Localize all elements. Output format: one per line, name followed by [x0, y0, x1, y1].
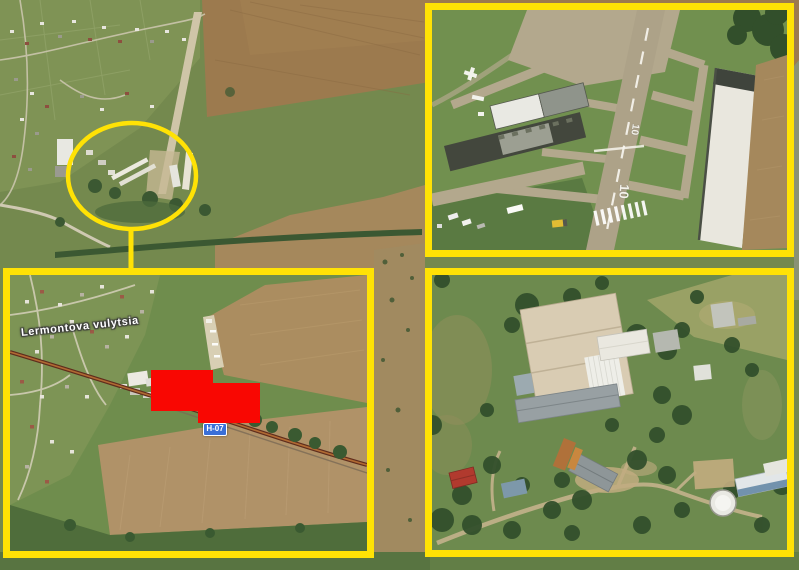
runway-number-far: 10 [628, 123, 640, 136]
inset-map [10, 275, 367, 551]
building-gray-small [653, 329, 681, 353]
runway-number-near: 10 [616, 184, 632, 199]
road-badge-h07: H-07 [203, 423, 227, 436]
facility-panel [425, 268, 794, 557]
airfield-panel: 10 10 [425, 3, 794, 257]
warehouse-annex [513, 373, 534, 396]
gravel-pad [693, 459, 735, 490]
redaction-rect-2 [198, 383, 260, 423]
inset-panel: Lermontova vulytsia H-07 [3, 268, 374, 558]
satellite-collage: Lermontova vulytsia H-07 [0, 0, 799, 570]
storage-tank [710, 490, 736, 516]
facility-map [432, 275, 787, 550]
airfield-map [432, 10, 787, 250]
shed-white [693, 364, 711, 381]
building-topright [710, 302, 735, 329]
